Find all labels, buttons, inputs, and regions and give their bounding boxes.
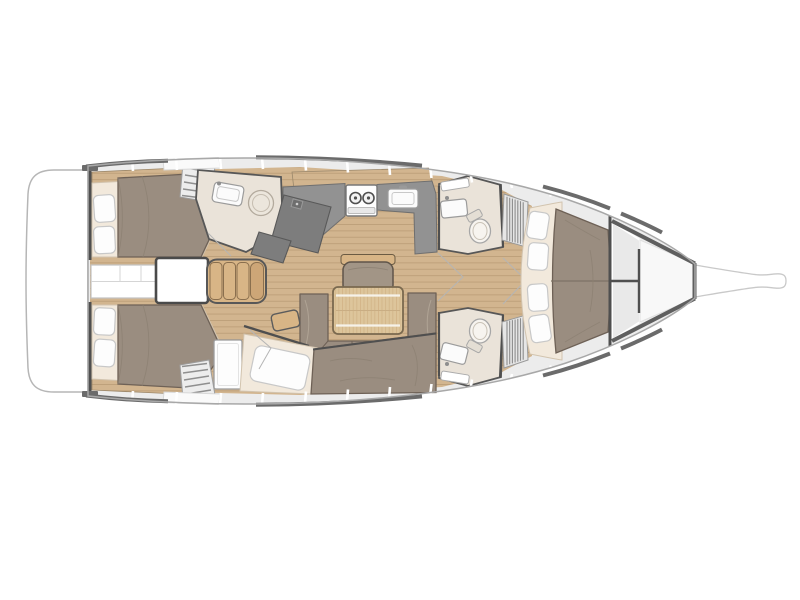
swim-platform: [26, 170, 88, 392]
fwd-head-bottom: [439, 308, 503, 386]
faucet-icon: [445, 196, 449, 200]
pillow: [93, 194, 116, 222]
burner-dot: [354, 196, 357, 199]
locker-door: [214, 340, 242, 389]
settee-cushion: [210, 263, 222, 300]
settee-armrest: [251, 263, 264, 300]
louver-slats: [507, 197, 523, 245]
settee-cushion: [224, 263, 236, 300]
burner-dot: [367, 196, 370, 199]
pillow: [526, 211, 550, 241]
pillow: [527, 242, 549, 270]
pillow: [93, 226, 115, 254]
engine-box: [156, 258, 208, 303]
settee-bench: [207, 260, 266, 304]
pillow: [527, 283, 549, 311]
pillow: [528, 314, 552, 344]
pillow: [93, 307, 115, 335]
faucet-icon: [445, 362, 449, 366]
bowsprit: [695, 265, 786, 297]
fwd-head-top: [439, 176, 503, 254]
faucet-icon: [217, 182, 221, 186]
faucet-icon: [399, 186, 407, 190]
pillow: [93, 339, 116, 367]
anchor-locker: [640, 240, 695, 322]
oven-handle: [348, 208, 375, 214]
yacht-floor-plan: [0, 0, 800, 600]
instrument-dot: [296, 203, 299, 206]
sink-icon: [440, 199, 468, 219]
louver-slats: [507, 318, 523, 366]
aft-corridor: [91, 265, 157, 298]
yacht-floor-plan-canvas: [0, 0, 800, 600]
settee-cushion: [237, 263, 249, 300]
